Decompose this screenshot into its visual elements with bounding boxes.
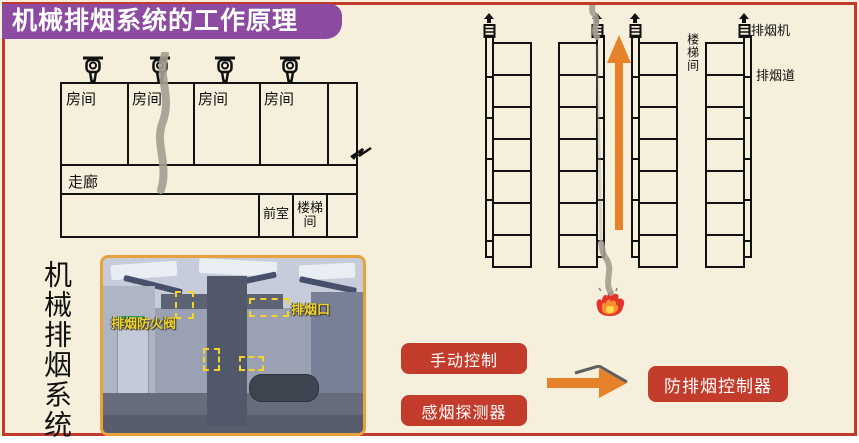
floor-cell (705, 234, 745, 268)
roof-fan-icon (589, 13, 606, 40)
floor-cell (492, 74, 532, 108)
floor-cell (638, 138, 678, 172)
building-shaft (558, 42, 598, 268)
floor-cell (705, 42, 745, 76)
rooms-row: 房间 房间 房间 房间 (60, 82, 358, 166)
corridor-label: 走廊 (68, 171, 98, 192)
stairwell-section-label: 楼梯间 (686, 33, 699, 72)
roof-fan-icon (627, 13, 644, 40)
exhaust-fan-icon (149, 56, 171, 83)
building-shaft (492, 42, 532, 268)
floor-cell (558, 42, 598, 76)
room-divider (327, 84, 329, 164)
floor-cell (558, 234, 598, 268)
floor-cell (492, 42, 532, 76)
floor-cell (705, 138, 745, 172)
page-title: 机械排烟系统的工作原理 (2, 4, 342, 39)
exhaust-fan-label: 排烟机 (751, 20, 790, 39)
room-label: 房间 (198, 88, 228, 109)
bottom-row: 前室 楼梯间 (60, 193, 358, 238)
building-shaft (705, 42, 745, 268)
floor-cell (492, 138, 532, 172)
stairwell-label: 楼梯间 (294, 201, 326, 230)
damper-label: 排烟防火阀 (111, 313, 176, 332)
outlet-label: 排烟口 (291, 299, 330, 318)
flow-arrow (547, 365, 629, 401)
photo-fan-unit (249, 374, 319, 402)
photo-side-caption: 机械排烟系统 (35, 260, 75, 440)
smoke-detector-box: 感烟探测器 (401, 395, 527, 426)
exhaust-fan-icon (214, 56, 236, 83)
floor-cell (638, 74, 678, 108)
floor-cell (705, 202, 745, 236)
fire-icon (593, 286, 629, 318)
floor-cell (638, 42, 678, 76)
floor-cell (705, 170, 745, 204)
manual-control-box: 手动控制 (401, 343, 527, 374)
floor-cell (705, 74, 745, 108)
room-label: 房间 (132, 88, 162, 109)
corridor: 走廊 (60, 164, 358, 195)
floor-cell (558, 106, 598, 140)
room-label: 房间 (264, 88, 294, 109)
exhaust-fan-icon (279, 56, 301, 83)
system-photo: 排烟防火阀 排烟口 (100, 255, 366, 436)
bottom-margin (0, 436, 859, 443)
outlet-highlight-box (239, 356, 264, 371)
outlet-highlight-box (249, 298, 289, 317)
floor-cell (492, 170, 532, 204)
front-room-label: 前室 (260, 207, 292, 221)
cell-divider (326, 195, 328, 236)
floor-cell (558, 74, 598, 108)
room-divider (259, 84, 261, 164)
roof-fan-icon (481, 13, 498, 40)
exhaust-fan-icon (82, 56, 104, 83)
floor-cell (492, 202, 532, 236)
exhaust-duct-label: 排烟道 (756, 65, 795, 84)
roof-fan-icon (736, 13, 753, 40)
room-divider (193, 84, 195, 164)
break-symbol-icon (349, 145, 373, 161)
floor-cell (558, 138, 598, 172)
floor-cell (492, 234, 532, 268)
floor-plan: 房间 房间 房间 房间 走廊 前室 楼梯间 (60, 82, 358, 242)
floor-cell (638, 170, 678, 204)
damper-highlight-box (203, 348, 220, 371)
slide-frame: 机械排烟系统的工作原理 房间 房间 房间 房间 走廊 前室 楼梯间 (2, 2, 857, 436)
floor-cell (638, 202, 678, 236)
floor-cell (638, 234, 678, 268)
floor-cell (492, 106, 532, 140)
damper-highlight-box (175, 291, 194, 319)
room-label: 房间 (66, 88, 96, 109)
floor-cell (558, 170, 598, 204)
upward-flow-arrow (606, 35, 632, 231)
floor-cell (638, 106, 678, 140)
room-divider (127, 84, 129, 164)
building-shaft (638, 42, 678, 268)
floor-cell (558, 202, 598, 236)
floor-cell (705, 106, 745, 140)
controller-box: 防排烟控制器 (648, 366, 788, 402)
